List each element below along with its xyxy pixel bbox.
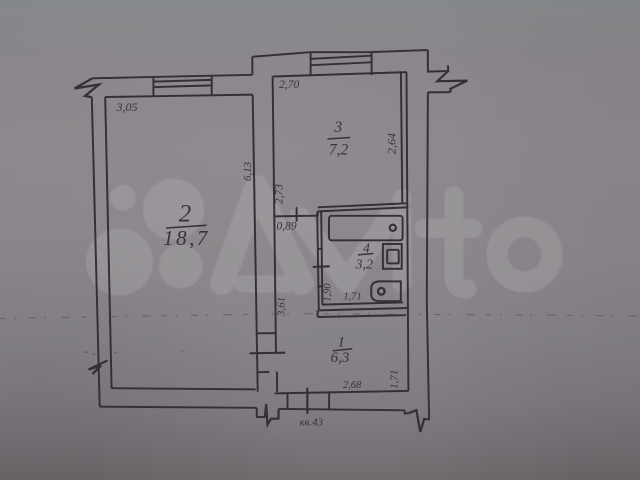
svg-text:18,7: 18,7 (163, 226, 210, 250)
svg-text:3,05: 3,05 (116, 100, 138, 114)
svg-text:2: 2 (179, 201, 192, 228)
svg-text:2,73: 2,73 (274, 184, 286, 204)
svg-text:3,61: 3,61 (275, 297, 287, 317)
svg-text:1: 1 (338, 335, 346, 351)
svg-text:2,68: 2,68 (343, 380, 362, 391)
svg-text:1,71: 1,71 (343, 291, 361, 302)
svg-text:1,71: 1,71 (389, 370, 401, 389)
svg-text:0,89: 0,89 (276, 221, 296, 233)
svg-text:6,3: 6,3 (331, 350, 350, 366)
svg-text:3,2: 3,2 (354, 257, 373, 272)
svg-text:кв.43: кв.43 (299, 417, 323, 429)
svg-text:2,64: 2,64 (384, 133, 398, 154)
svg-text:2,70: 2,70 (279, 79, 299, 91)
svg-text:7,2: 7,2 (329, 142, 349, 159)
svg-text:1,90: 1,90 (323, 283, 334, 302)
svg-text:3: 3 (333, 119, 342, 136)
svg-text:6,13: 6,13 (242, 161, 254, 181)
